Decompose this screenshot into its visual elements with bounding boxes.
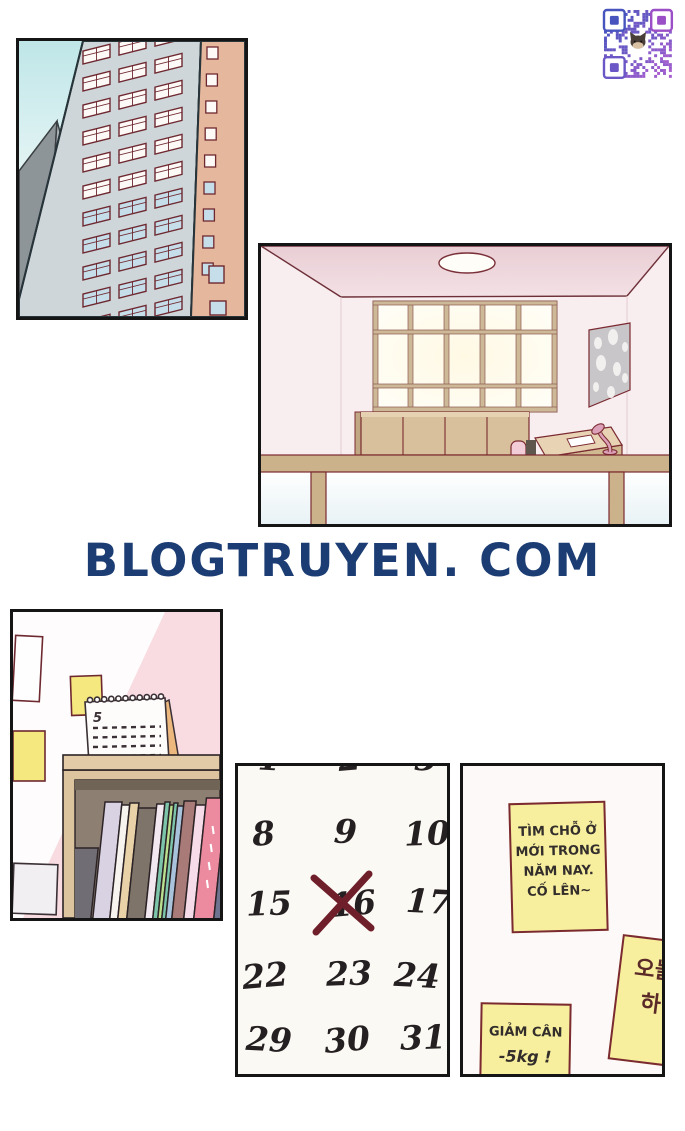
cat-icon xyxy=(629,32,647,50)
calendar-day: 3 xyxy=(413,763,437,778)
panel-calendar-closeup: 1 2 3 8 9 10 15 16 17 22 23 24 29 30 31 xyxy=(235,763,450,1077)
sticky-note-diet: GIẢM CÂN -5kg ! xyxy=(479,1002,571,1077)
panel-room xyxy=(258,243,672,527)
ceiling-light xyxy=(439,253,495,273)
note-line: 하 xyxy=(615,984,665,1026)
wall-note-white-2 xyxy=(13,863,58,915)
calendar-day: 2 xyxy=(336,763,362,779)
cabinet xyxy=(355,412,529,455)
panel-shelf: 5 xyxy=(10,609,223,921)
calendar-day: 17 xyxy=(405,881,450,922)
note-line: GIẢM CÂN xyxy=(482,1020,569,1046)
calendar-day-crossed: 16 xyxy=(328,882,377,925)
sticky-note-resolution: TÌM CHỖ Ở MỚI TRONG NĂM NAY. CỐ LÊN~ xyxy=(508,801,608,933)
calendar-month: 5 xyxy=(93,711,102,726)
note-line: TÌM CHỖ Ở xyxy=(511,821,604,843)
note-line: -5kg ! xyxy=(482,1044,569,1070)
panel-sticky-notes: TÌM CHỖ Ở MỚI TRONG NĂM NAY. CỐ LÊN~ 오늘 … xyxy=(460,763,665,1077)
calendar-day: 29 xyxy=(245,1019,293,1060)
calendar-day: 9 xyxy=(333,811,358,851)
wall-note-yellow-2 xyxy=(13,731,45,781)
wall-note-white xyxy=(13,635,43,701)
comic-page: BLOGTRUYEN. COM 5 xyxy=(0,0,685,1131)
calendar-day: 31 xyxy=(399,1017,446,1058)
note-line: MỚI TRONG xyxy=(511,841,604,863)
sticky-note-korean: 오늘 하 xyxy=(608,934,665,1068)
calendar-day: 15 xyxy=(245,883,292,924)
calendar-day: 1 xyxy=(257,763,282,779)
desk-calendar: 5 xyxy=(85,694,179,763)
note-line: NĂM NAY. xyxy=(512,861,605,883)
window xyxy=(373,301,557,412)
calendar-day: 10 xyxy=(403,813,450,854)
calendar-day: 8 xyxy=(250,813,276,854)
qr-code xyxy=(600,6,676,82)
calendar-day: 23 xyxy=(325,953,372,994)
calendar-day: 22 xyxy=(240,954,289,997)
panel-buildings xyxy=(16,38,248,320)
calendar-day: 30 xyxy=(322,1018,371,1061)
note-line: CỐ LÊN~ xyxy=(512,881,605,903)
calendar-day: 24 xyxy=(393,955,441,996)
watermark-text: BLOGTRUYEN. COM xyxy=(0,534,685,587)
bookshelf xyxy=(63,755,220,918)
